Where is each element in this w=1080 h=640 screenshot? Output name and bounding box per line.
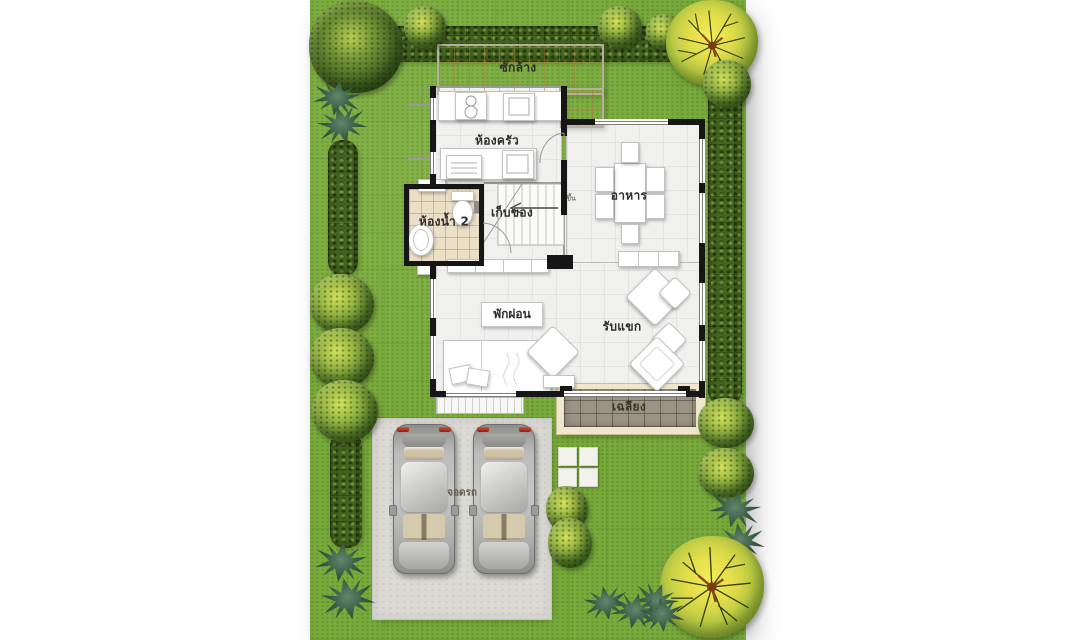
stepping-stone <box>579 468 598 487</box>
refrigerator <box>446 155 482 179</box>
tree-round <box>698 398 754 448</box>
side-mirror <box>531 505 539 516</box>
window <box>430 152 436 174</box>
stepping-stone <box>558 447 577 466</box>
rear-window <box>482 434 526 447</box>
kitchen-sink-2 <box>502 150 534 179</box>
hedge-left-upper <box>328 140 358 276</box>
window <box>430 336 436 379</box>
car-hood <box>479 542 529 569</box>
wall-segment <box>699 183 705 193</box>
dining-chair <box>621 224 639 244</box>
car-1 <box>393 424 455 574</box>
bush-column <box>548 518 592 568</box>
room-label-kitchen: ห้องครัว <box>475 132 519 151</box>
wall-segment <box>516 391 564 397</box>
room-label-dining: อาหาร <box>611 187 648 206</box>
wall-segment <box>699 325 705 341</box>
wall-segment <box>699 243 705 283</box>
rear-seat <box>404 447 444 460</box>
stepping-stone <box>579 447 598 466</box>
wall-segment <box>430 86 436 98</box>
tree-round <box>312 380 378 442</box>
side-mirror <box>451 505 459 516</box>
front-seats <box>403 514 445 540</box>
window-sill <box>408 104 430 106</box>
wall-segment <box>430 318 436 336</box>
wall-segment <box>404 184 409 266</box>
window <box>699 341 705 381</box>
rear-window <box>402 434 446 447</box>
window <box>699 139 705 183</box>
car-roof <box>401 462 447 512</box>
rear-seat <box>484 447 524 460</box>
floor-plan: พักผ่อน <box>0 0 1080 640</box>
tree-round <box>598 6 642 48</box>
tree-round <box>310 274 374 334</box>
wall-segment <box>430 120 436 152</box>
door-arc <box>482 222 512 254</box>
room-label-laundry: ซักล้าง <box>500 59 537 78</box>
taillight <box>477 427 489 432</box>
room-label-storage: เก็บของ <box>491 204 533 223</box>
side-deck <box>436 397 524 414</box>
window <box>699 193 705 243</box>
window <box>446 391 516 397</box>
window <box>430 98 436 120</box>
room-label-bathroom2: ห้องน้ำ 2 <box>419 213 469 232</box>
dining-chair <box>621 142 639 163</box>
car-2 <box>473 424 535 574</box>
tree-round <box>703 60 751 108</box>
window <box>430 279 436 318</box>
window <box>699 283 705 325</box>
window <box>595 119 668 125</box>
stairs-up-label: ขึ้น <box>566 194 576 205</box>
tree-round <box>404 6 446 48</box>
dining-chair <box>646 194 665 219</box>
wall-segment <box>699 119 705 139</box>
dining-chair <box>646 167 665 192</box>
tree-round <box>310 328 374 388</box>
taillight <box>519 427 531 432</box>
window-sill <box>408 158 430 160</box>
tree-large-topleft <box>309 1 403 93</box>
wall-segment <box>563 119 595 125</box>
sideboard <box>618 251 680 267</box>
room-label-parking: จอดรถ <box>447 486 477 501</box>
taillight <box>439 427 451 432</box>
car-roof <box>481 462 527 512</box>
tree-yellow-bottomright <box>660 536 764 638</box>
tree-round <box>698 448 754 498</box>
wall-segment <box>547 255 573 269</box>
stove <box>455 92 487 120</box>
car-hood <box>399 542 449 569</box>
wall-segment <box>404 184 484 189</box>
door-arc <box>539 132 565 164</box>
stepping-stone <box>558 468 577 487</box>
side-mirror <box>389 505 397 516</box>
room-label-porch: เฉลียง <box>612 398 646 417</box>
pillow <box>466 367 490 387</box>
wall-segment <box>404 261 484 266</box>
room-label-living: รับแขก <box>603 318 642 337</box>
wall-segment <box>430 391 446 397</box>
front-seats <box>483 514 525 540</box>
room-label-relax: พักผ่อน <box>481 302 543 327</box>
partition-line <box>436 86 562 88</box>
side-mirror <box>469 505 477 516</box>
hedge-left-lower <box>330 432 362 548</box>
sliding-door <box>564 391 686 397</box>
kitchen-sink <box>503 93 535 121</box>
taillight <box>397 427 409 432</box>
